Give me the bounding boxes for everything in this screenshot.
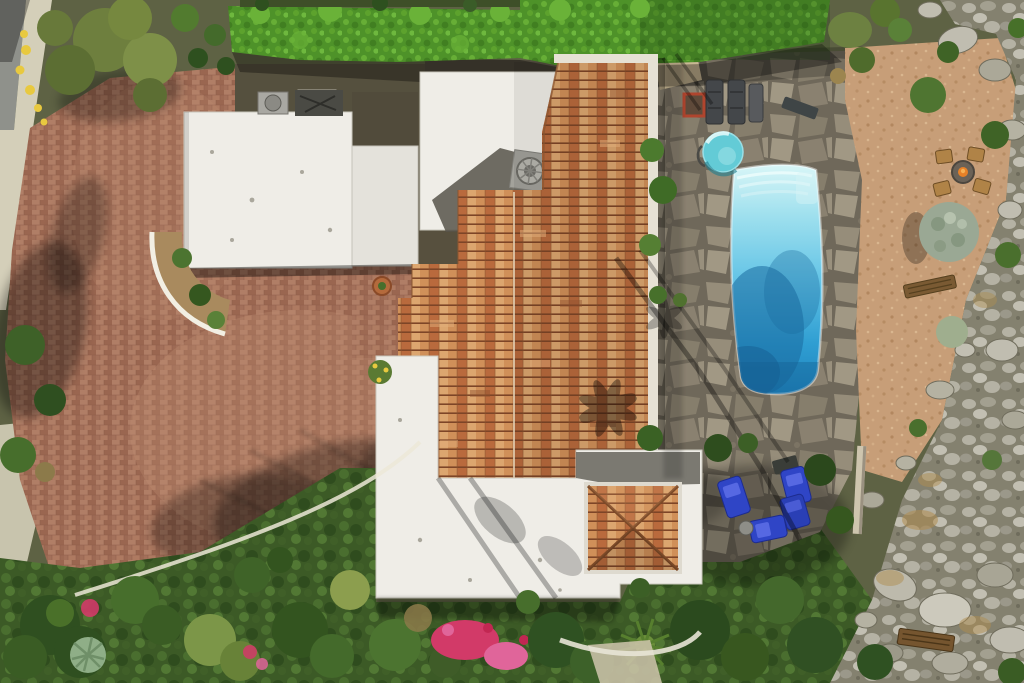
fire-flame-core <box>961 169 965 173</box>
agave <box>70 637 106 673</box>
fire-chair <box>967 147 985 163</box>
pool-step-ledge <box>796 172 818 204</box>
south-walkway <box>588 640 662 683</box>
pot-plant <box>378 282 386 290</box>
ac-units <box>258 90 343 116</box>
red-planter <box>684 94 704 116</box>
side-table <box>739 521 753 535</box>
north-parapet <box>554 54 654 63</box>
dark-loungers <box>706 80 763 124</box>
round-bush <box>919 202 979 262</box>
side-court <box>352 92 418 148</box>
lounger <box>728 80 745 124</box>
house-shadow-on-patio <box>664 62 682 478</box>
hedge-left <box>228 6 520 62</box>
lounger-cushion <box>755 522 772 539</box>
left-wing-extension-roof <box>352 146 418 266</box>
lounger <box>749 84 763 122</box>
ac-fan <box>265 95 281 111</box>
flower-shrub <box>368 360 392 384</box>
spa-center <box>718 147 736 165</box>
aerial-photo-svg <box>0 0 1024 683</box>
left-wing-roof <box>184 112 352 268</box>
left-roof-edge-shade <box>184 112 189 268</box>
hedge-dark-end <box>640 0 830 60</box>
aerial-photo: Aerial drone view of desert estate with … <box>0 0 1024 683</box>
pool-tree-shadow-2 <box>764 250 820 334</box>
fire-chair <box>935 149 953 164</box>
